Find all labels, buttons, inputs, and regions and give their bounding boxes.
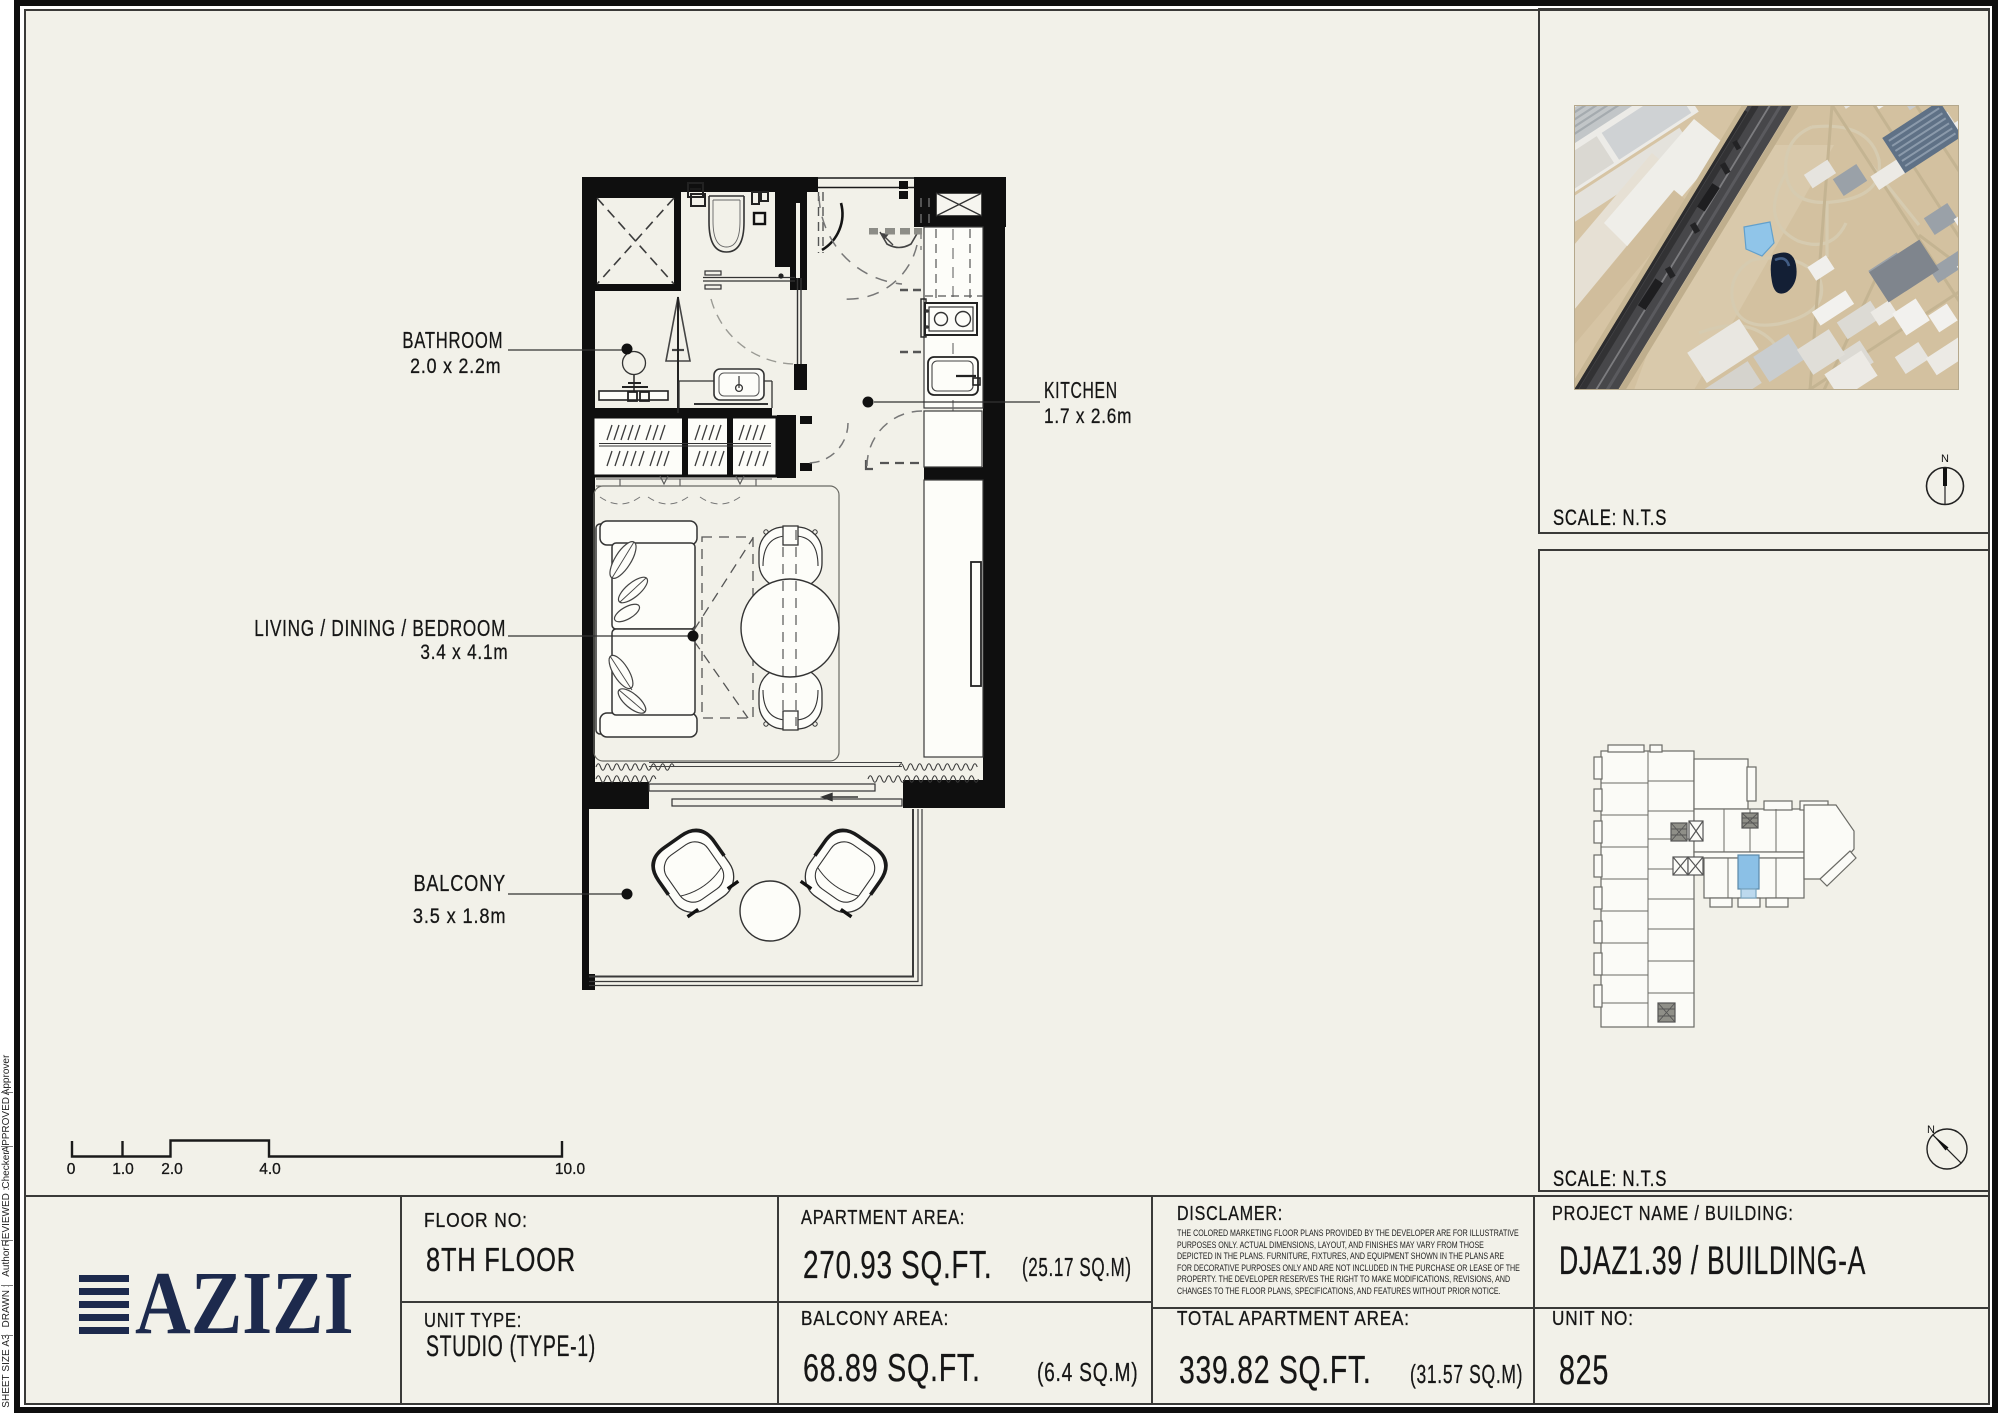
svg-text:N: N [1941,453,1949,465]
